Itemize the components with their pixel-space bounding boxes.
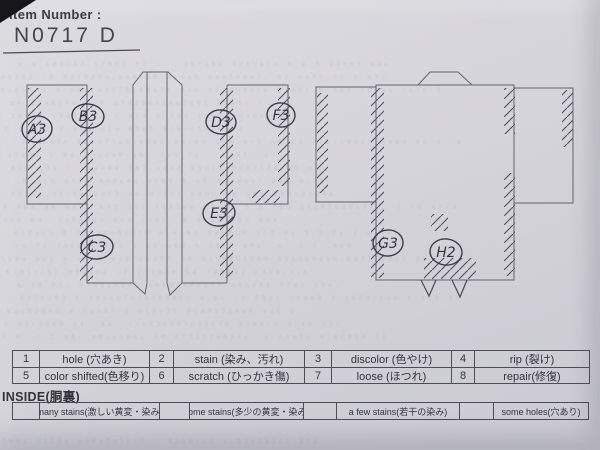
photo-corner-shadow xyxy=(0,0,36,23)
legend-code: 7 xyxy=(304,367,331,383)
legend-label: loose (ほつれ) xyxy=(331,367,451,383)
legend-code: 5 xyxy=(13,367,39,383)
kimono-front-diagram xyxy=(27,72,290,295)
svg-text:A3: A3 xyxy=(27,122,46,138)
inspection-sheet-photo: e s sm3157.sr962 c7 1 . 28r16e 6e0nmrs 5… xyxy=(0,0,600,450)
inside-checkbox-3 xyxy=(303,403,336,419)
inside-option-label: a few stains(若干の染み) xyxy=(336,403,459,419)
hatch-front-left-sleeve xyxy=(28,88,41,198)
legend-label: discolor (色やけ) xyxy=(331,351,451,367)
svg-text:H2: H2 xyxy=(436,245,456,261)
hatch-front-sleeve-corner xyxy=(252,190,280,203)
hatch-back-right-edge-lower xyxy=(504,173,515,276)
hatch-back-hem xyxy=(424,258,476,279)
svg-text:F3: F3 xyxy=(273,108,290,124)
svg-text:D3: D3 xyxy=(211,115,231,131)
legend-code: 4 xyxy=(451,351,474,367)
defect-legend-table: 1 hole (穴あき) 2 stain (染み、汚れ) 3 discolor … xyxy=(12,350,590,384)
legend-label: scratch (ひっかき傷) xyxy=(173,367,304,383)
hatch-back-center xyxy=(431,214,448,231)
hatch-back-right-edge-upper xyxy=(504,88,515,134)
legend-label: color shifted(色移り) xyxy=(39,367,149,383)
legend-code: 2 xyxy=(149,351,173,367)
svg-text:G3: G3 xyxy=(378,236,398,252)
inside-checkbox-2 xyxy=(159,403,189,419)
inside-condition-table: many stains(激しい黄変・染み) some stains(多少の黄変・… xyxy=(12,402,589,420)
inside-option-label: some stains(多少の黄変・染み) xyxy=(189,403,303,419)
legend-label: stain (染み、汚れ) xyxy=(173,351,304,367)
legend-label: rip (裂け) xyxy=(474,351,589,367)
svg-text:E3: E3 xyxy=(210,206,228,222)
item-number-value: N0717 D xyxy=(14,24,118,48)
inside-checkbox-4 xyxy=(459,403,493,419)
inside-option-label: many stains(激しい黄変・染み) xyxy=(39,403,159,419)
svg-text:B3: B3 xyxy=(79,109,98,125)
legend-code: 8 xyxy=(451,367,474,383)
hem-notch-right xyxy=(452,280,467,297)
svg-text:C3: C3 xyxy=(88,240,107,256)
legend-label: hole (穴あき) xyxy=(39,351,149,367)
legend-code: 6 xyxy=(149,367,173,383)
hatch-back-left-sleeve xyxy=(317,93,328,193)
inside-option-label: some holes(穴あり) xyxy=(493,403,588,419)
item-number-underline xyxy=(3,50,140,53)
legend-code: 3 xyxy=(304,351,331,367)
front-outline xyxy=(27,72,288,295)
hatch-back-right-sleeve xyxy=(562,90,573,147)
hem-notch-left xyxy=(421,280,436,296)
kimono-back-diagram xyxy=(316,72,573,297)
legend-code: 1 xyxy=(13,351,39,367)
legend-label: repair(修復) xyxy=(474,367,589,383)
inside-checkbox-1 xyxy=(13,403,39,419)
